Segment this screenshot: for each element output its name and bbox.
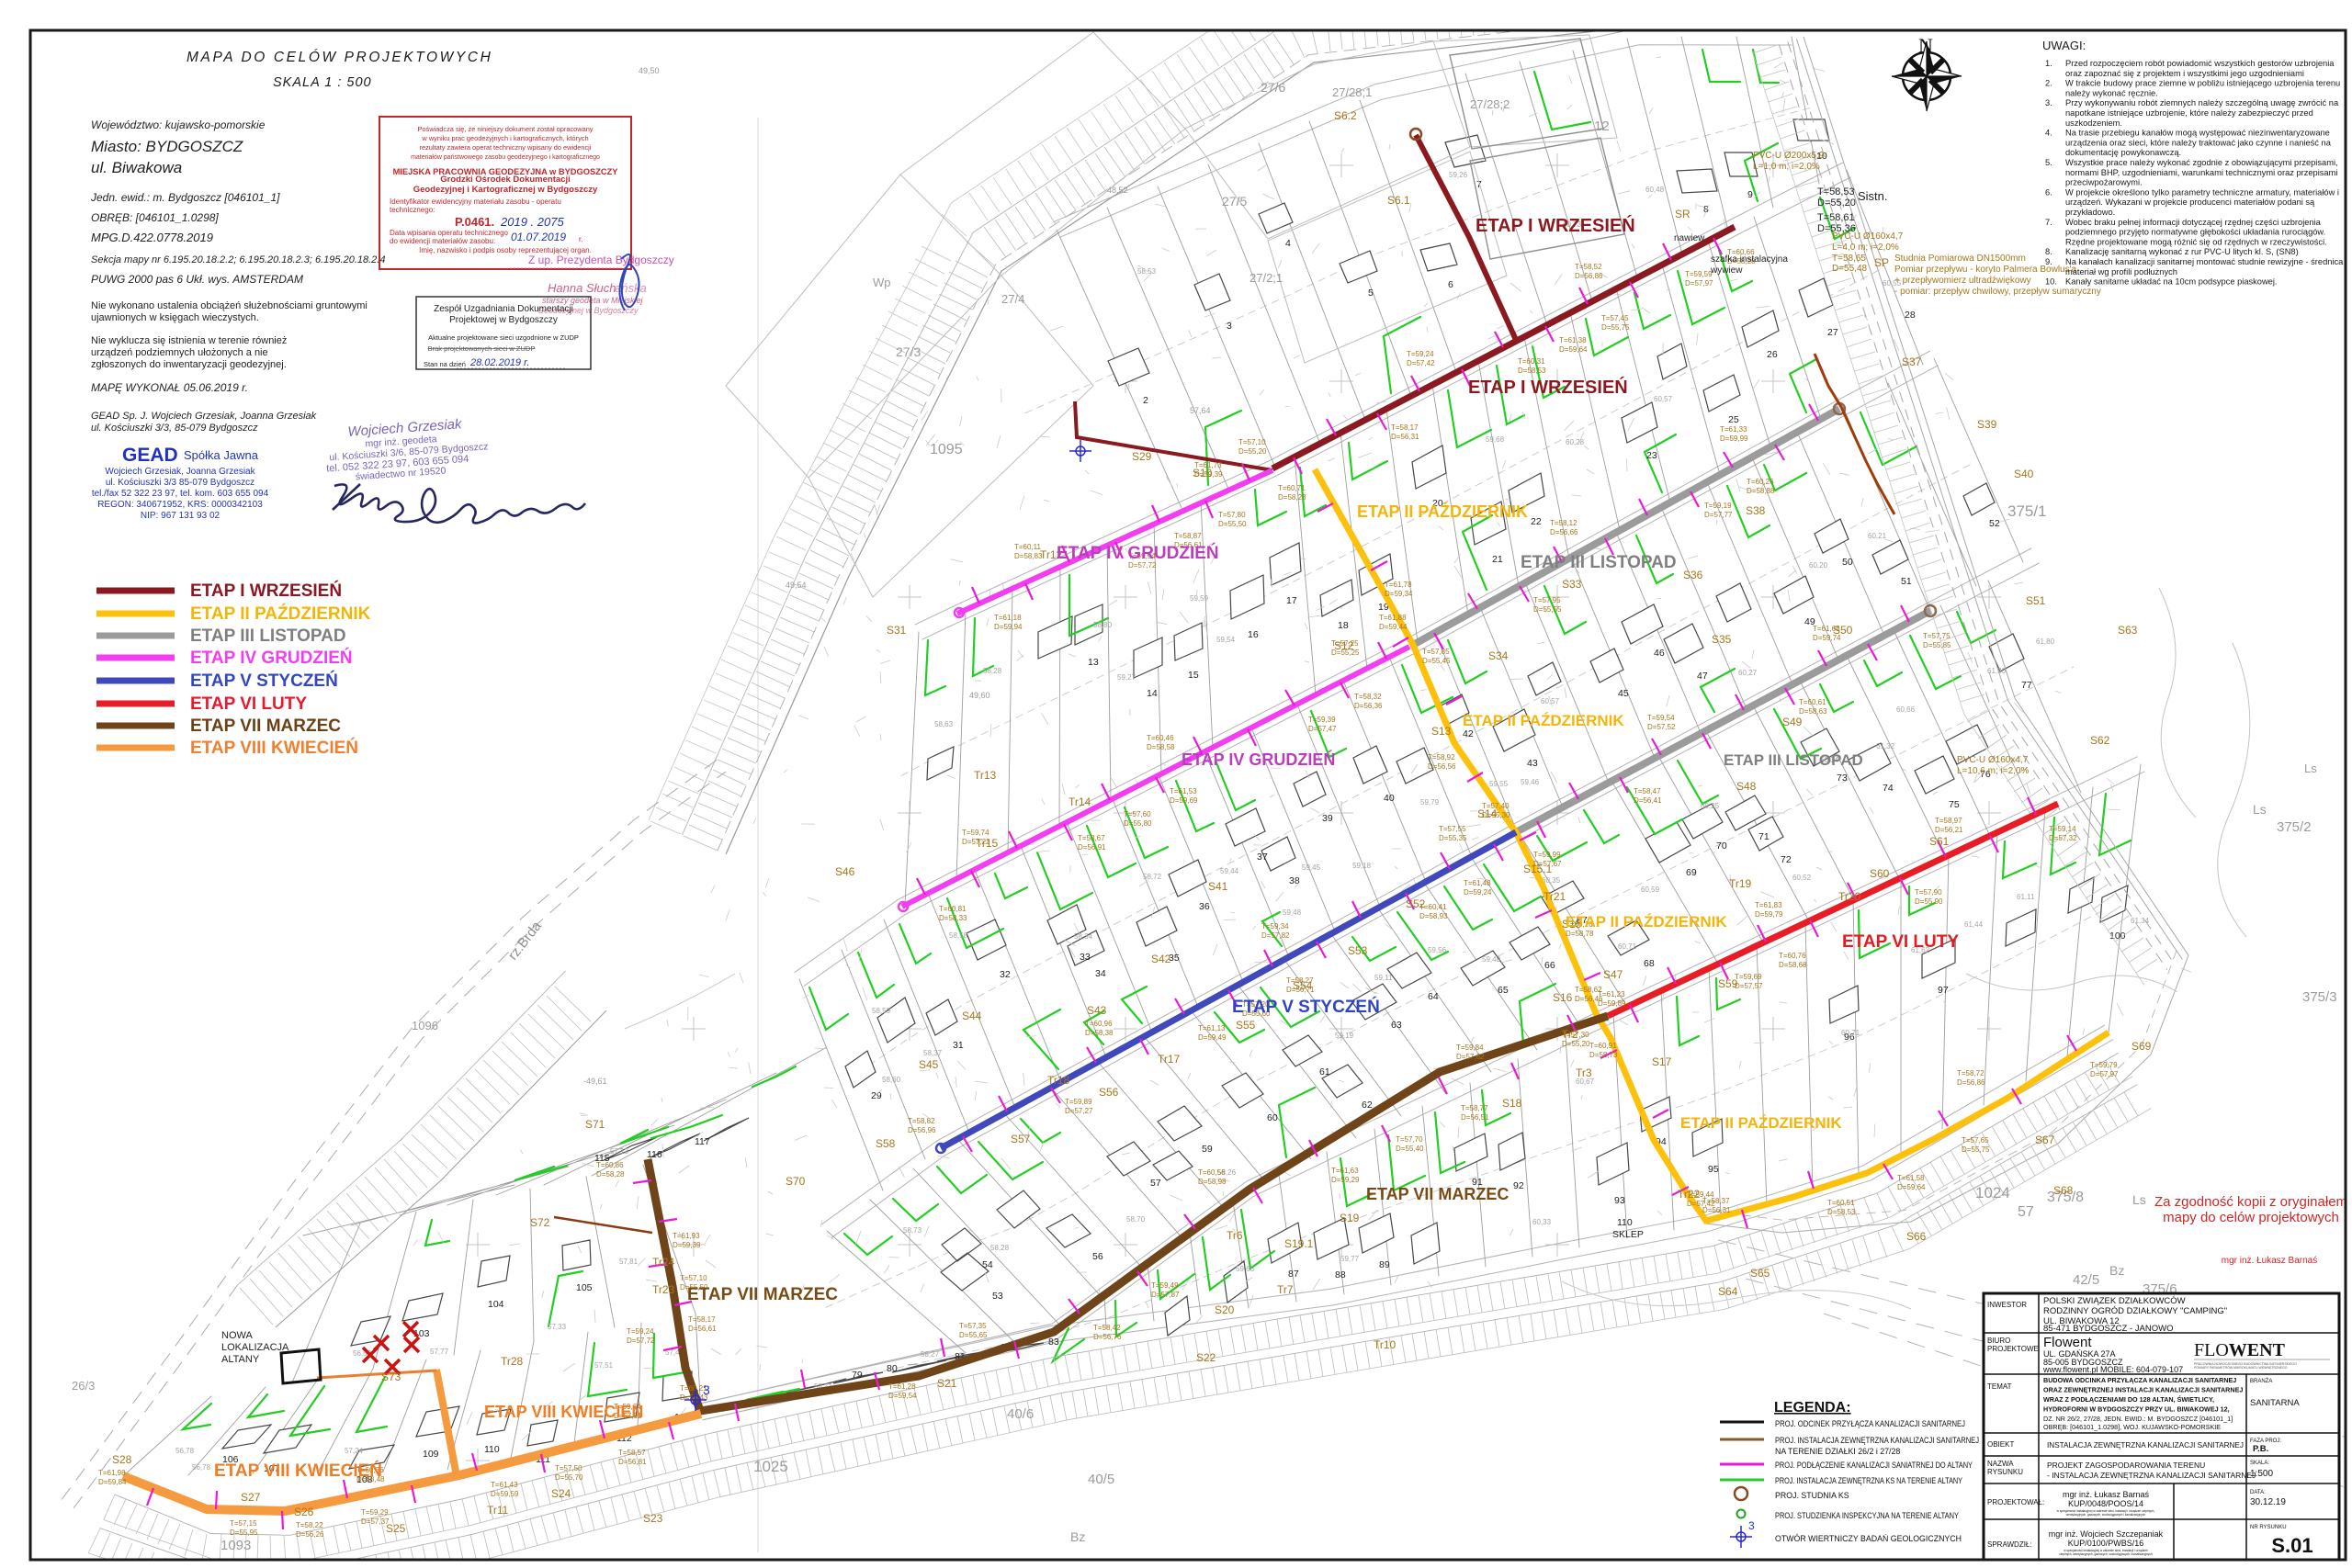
svg-text:materiał wg profili podłużnych: materiał wg profili podłużnych	[2065, 267, 2177, 276]
svg-text:D=57,52: D=57,52	[1647, 723, 1676, 731]
svg-text:S26: S26	[294, 1506, 314, 1518]
svg-text:ALTANY: ALTANY	[221, 1354, 260, 1365]
svg-text:ETAP III LISTOPAD: ETAP III LISTOPAD	[190, 626, 346, 646]
svg-text:93: 93	[1614, 1195, 1625, 1206]
svg-text:T=60,76: T=60,76	[1779, 952, 1806, 960]
svg-text:S34: S34	[1488, 649, 1509, 662]
svg-text:S56: S56	[1099, 1086, 1119, 1099]
svg-text:T=57,95: T=57,95	[1533, 596, 1561, 604]
svg-text:S6.2: S6.2	[1334, 109, 1357, 122]
svg-text:9: 9	[1747, 189, 1753, 200]
svg-text:Tr24: Tr24	[652, 1256, 675, 1269]
svg-text:PROJEKTOWE: PROJEKTOWE	[1987, 1345, 2039, 1353]
svg-text:DZ. NR 26/2, 27/28, JEDN. EWID: DZ. NR 26/2, 27/28, JEDN. EWID.: M. BYDG…	[2043, 1415, 2233, 1423]
svg-text:D=57,32: D=57,32	[2049, 834, 2077, 842]
svg-text:T=61,88: T=61,88	[1379, 614, 1407, 622]
svg-text:60,20: 60,20	[1809, 561, 1828, 570]
svg-text:technicznego:: technicznego:	[390, 206, 435, 214]
svg-text:43: 43	[1527, 758, 1538, 769]
svg-text:Za zgodność kopii z oryginałem: Za zgodność kopii z oryginałem	[2154, 1194, 2347, 1210]
svg-text:D=57,87: D=57,87	[1151, 1291, 1180, 1299]
svg-text:S46: S46	[835, 865, 855, 878]
svg-text:T=60,81: T=60,81	[939, 905, 967, 913]
svg-text:S63: S63	[2118, 624, 2138, 637]
svg-text:zgłoszonych do inwentaryzacji: zgłoszonych do inwentaryzacji geodezyjne…	[91, 359, 287, 370]
svg-text:68: 68	[1644, 958, 1655, 969]
svg-text:mapy do celów projektowych: mapy do celów projektowych	[2163, 1210, 2339, 1225]
svg-text:S48: S48	[1736, 780, 1757, 793]
svg-text:mgr inż. Łukasz Barnaś: mgr inż. Łukasz Barnaś	[2063, 1490, 2150, 1499]
svg-text:3: 3	[1227, 321, 1232, 332]
svg-text:T=57,15: T=57,15	[230, 1519, 257, 1528]
svg-text:ETAP VII MARZEC: ETAP VII MARZEC	[687, 1285, 838, 1304]
svg-text:59,77: 59,77	[1340, 1255, 1360, 1263]
svg-text:T=59,19: T=59,19	[1704, 502, 1732, 510]
svg-text:S15.1: S15.1	[1523, 863, 1553, 875]
svg-text:D=59,64: D=59,64	[1559, 345, 1588, 354]
svg-text:S19.1: S19.1	[1284, 1237, 1314, 1250]
svg-text:SANITARNA: SANITARNA	[2250, 1398, 2300, 1408]
svg-text:58,80: 58,80	[1093, 621, 1113, 629]
svg-text:Kanalizację sanitarną wykonać: Kanalizację sanitarną wykonać z rur PVC-…	[2065, 247, 2299, 256]
svg-text:T=57,90: T=57,90	[1915, 888, 1942, 897]
svg-text:Tr7: Tr7	[1277, 1283, 1294, 1296]
svg-text:S6.1: S6.1	[1387, 194, 1410, 207]
svg-text:D=59,39: D=59,39	[673, 1241, 701, 1249]
svg-text:ul. Kościuszki 3/3, 85-079 Byd: ul. Kościuszki 3/3, 85-079 Bydgoszcz	[91, 423, 258, 434]
svg-text:Wojciech Grzesiak, Joanna Grze: Wojciech Grzesiak, Joanna Grzesiak	[105, 467, 255, 477]
svg-text:T=58,87: T=58,87	[1174, 532, 1202, 540]
svg-text:D=55,85: D=55,85	[1923, 641, 1951, 649]
svg-text:27: 27	[1827, 327, 1838, 338]
svg-text:D=57,97: D=57,97	[2090, 1070, 2119, 1078]
svg-text:D=56,31: D=56,31	[1391, 433, 1419, 441]
svg-text:T=59,24: T=59,24	[1407, 350, 1434, 358]
svg-text:Wp: Wp	[873, 276, 891, 289]
svg-text:60: 60	[1267, 1112, 1278, 1123]
svg-text:40/5: 40/5	[1088, 1472, 1114, 1487]
svg-text:D=56,51: D=56,51	[1461, 1113, 1489, 1122]
svg-text:58,58: 58,58	[949, 931, 968, 940]
svg-text:Sistn.: Sistn.	[1858, 189, 1888, 203]
svg-text:nawiew: nawiew	[1674, 233, 1705, 243]
svg-text:D=57,72: D=57,72	[627, 1337, 655, 1345]
svg-text:S18: S18	[1502, 1097, 1522, 1110]
svg-text:T=57,60: T=57,60	[1124, 810, 1151, 818]
svg-text:LEGENDA:: LEGENDA:	[1774, 1400, 1851, 1416]
svg-text:D=55,48: D=55,48	[1832, 264, 1868, 274]
svg-text:Data wpisania operatu technicz: Data wpisania operatu technicznego	[390, 229, 509, 237]
svg-text:P.B.: P.B.	[2253, 1444, 2268, 1454]
svg-text:T=61,13: T=61,13	[1198, 1024, 1226, 1032]
svg-text:Jedn. ewid.: m. Bydgoszcz [046: Jedn. ewid.: m. Bydgoszcz [046101_1]	[90, 191, 280, 204]
svg-text:NA TERENIE DZIAŁKI 26/2 i 27/2: NA TERENIE DZIAŁKI 26/2 i 27/28	[1775, 1447, 1900, 1456]
svg-text:ETAP VIII KWIECIEŃ: ETAP VIII KWIECIEŃ	[190, 738, 358, 758]
svg-text:T=58,32: T=58,32	[1354, 693, 1382, 701]
svg-text:T=59,79: T=59,79	[2090, 1061, 2118, 1069]
svg-text:ORAZ ZEWNĘTRZNEJ INSTALACJI KA: ORAZ ZEWNĘTRZNEJ INSTALACJI KANALIZACJI …	[2043, 1386, 2243, 1394]
svg-text:ujawnionych w księgach wieczys: ujawnionych w księgach wieczystych.	[91, 312, 259, 323]
svg-text:OBIEKT: OBIEKT	[1987, 1440, 2014, 1449]
svg-text:PROJ. INSTALACJA ZEWNĘTRZNA KS: PROJ. INSTALACJA ZEWNĘTRZNA KS NA TERENI…	[1775, 1476, 1962, 1485]
svg-text:SKALA:: SKALA:	[2250, 1461, 2269, 1466]
svg-text:51: 51	[1901, 576, 1912, 587]
svg-text:S66: S66	[1906, 1230, 1927, 1243]
svg-text:D=56,86: D=56,86	[1575, 272, 1603, 280]
svg-text:1025: 1025	[753, 1458, 788, 1475]
svg-text:ETAP I WRZESIEŃ: ETAP I WRZESIEŃ	[1476, 215, 1635, 236]
svg-text:T=61,28: T=61,28	[888, 1382, 916, 1391]
svg-text:116: 116	[647, 1149, 662, 1160]
svg-text:Ls: Ls	[2132, 1192, 2146, 1207]
svg-text:D=58,98: D=58,98	[1198, 1178, 1227, 1186]
svg-text:S65: S65	[1750, 1267, 1770, 1280]
svg-text:T=61,98: T=61,98	[98, 1469, 126, 1477]
svg-text:urządzenia oraz sieci, które n: urządzenia oraz sieci, które należy trak…	[2065, 138, 2332, 147]
svg-text:49,60: 49,60	[969, 691, 990, 700]
svg-text:59,46: 59,46	[1521, 778, 1540, 786]
svg-text:ETAP VIII KWIECIEŃ: ETAP VIII KWIECIEŃ	[484, 1402, 643, 1421]
svg-text:T=61,53: T=61,53	[1170, 787, 1197, 795]
svg-text:S25: S25	[386, 1522, 406, 1535]
svg-text:60,28: 60,28	[1566, 438, 1585, 446]
svg-text:S39: S39	[1977, 418, 1997, 431]
svg-text:FLOWENT: FLOWENT	[2194, 1340, 2286, 1360]
svg-text:T=57,10: T=57,10	[680, 1274, 707, 1282]
svg-text:D=55,75: D=55,75	[1601, 323, 1630, 332]
svg-text:D=58,33: D=58,33	[939, 914, 967, 922]
svg-text:D=57,57: D=57,57	[1735, 982, 1763, 990]
svg-text:25: 25	[1728, 414, 1739, 425]
svg-text:PVC-U Ø200x5,9: PVC-U Ø200x5,9	[1753, 151, 1825, 161]
svg-text:S61: S61	[1929, 835, 1950, 848]
svg-text:SPRAWDZIŁ:: SPRAWDZIŁ:	[1987, 1540, 2032, 1549]
svg-text:r.: r.	[579, 235, 582, 243]
svg-text:57,77: 57,77	[430, 1348, 449, 1356]
svg-text:10.: 10.	[2045, 277, 2057, 287]
svg-text:61,44: 61,44	[1964, 920, 1984, 929]
svg-text:60,57: 60,57	[1541, 697, 1560, 705]
svg-text:71: 71	[1758, 831, 1770, 842]
svg-text:58,34: 58,34	[1074, 932, 1093, 941]
svg-text:D=59,49: D=59,49	[1198, 1033, 1227, 1042]
svg-text:D=57,47: D=57,47	[1308, 725, 1337, 733]
svg-text:ETAP II PAŹDZIERNIK: ETAP II PAŹDZIERNIK	[190, 604, 371, 624]
svg-text:59,44: 59,44	[1220, 867, 1239, 875]
svg-text:S45: S45	[919, 1058, 939, 1071]
svg-text:50: 50	[1842, 557, 1853, 568]
svg-text:57,33: 57,33	[548, 1323, 567, 1331]
svg-text:T=59,74: T=59,74	[962, 829, 989, 837]
svg-text:T=59,49: T=59,49	[1151, 1281, 1179, 1290]
svg-text:T=57,85: T=57,85	[1422, 648, 1450, 656]
svg-text:79: 79	[852, 1370, 863, 1381]
svg-text:T=61,38: T=61,38	[1559, 336, 1587, 344]
svg-text:S49: S49	[1782, 716, 1803, 728]
svg-text:T=57,10: T=57,10	[1238, 438, 1266, 446]
svg-text:375/2: 375/2	[2277, 819, 2312, 835]
svg-text:Bz: Bz	[2109, 1263, 2124, 1278]
svg-text:60,27: 60,27	[1738, 669, 1758, 677]
svg-text:T=58,72: T=58,72	[1957, 1069, 1984, 1077]
svg-text:WRAZ Z PODŁĄCZENIAMI DO 128 AL: WRAZ Z PODŁĄCZENIAMI DO 128 ALTAN, ŚWIET…	[2043, 1395, 2214, 1404]
svg-text:52: 52	[1989, 518, 2000, 529]
svg-text:Tr11: Tr11	[487, 1504, 509, 1517]
svg-text:105: 105	[576, 1282, 593, 1293]
svg-text:normami BHP, uzgodnieniami, wa: normami BHP, uzgodnieniami, warunkami te…	[2065, 168, 2337, 177]
svg-text:32: 32	[1000, 969, 1011, 980]
svg-text:PROJEKT ZAGOSPODAROWANIA TEREN: PROJEKT ZAGOSPODAROWANIA TERENU	[2047, 1461, 2205, 1470]
svg-text:Rzędne projektowane mogą różni: Rzędne projektowane mogą różnić się od r…	[2065, 237, 2327, 246]
svg-text:Tr10: Tr10	[1374, 1338, 1396, 1351]
svg-text:88: 88	[1335, 1269, 1346, 1280]
svg-text:D=59,54: D=59,54	[888, 1392, 917, 1400]
svg-text:S33: S33	[1562, 578, 1582, 591]
svg-text:69: 69	[1686, 867, 1697, 878]
svg-text:- INSTALACJA ZEWNĘTRZNA KANALI: - INSTALACJA ZEWNĘTRZNA KANALIZACJI SANI…	[2047, 1471, 2256, 1480]
svg-text:ETAP VI LUTY: ETAP VI LUTY	[1842, 932, 1959, 952]
svg-text:34: 34	[1095, 968, 1106, 979]
svg-text:INSTALACJA ZEWNĘTRZNA KANALIZA: INSTALACJA ZEWNĘTRZNA KANALIZACJI SANITA…	[2047, 1441, 2244, 1450]
svg-text:73: 73	[1837, 773, 1848, 784]
svg-text:dokumentację powykonawczą.: dokumentację powykonawczą.	[2065, 148, 2181, 157]
svg-text:7.: 7.	[2045, 218, 2052, 227]
svg-text:szafka instalacyjna: szafka instalacyjna	[1711, 254, 1788, 265]
svg-text:59,27: 59,27	[1117, 673, 1136, 682]
svg-text:39: 39	[1322, 813, 1333, 824]
svg-text:Tr20: Tr20	[1838, 890, 1861, 903]
svg-text:T=57,55: T=57,55	[1439, 825, 1466, 833]
svg-text:D=55,65: D=55,65	[959, 1331, 988, 1339]
svg-text:Tr15: Tr15	[976, 837, 999, 850]
svg-text:w wyniku prac geodezyjnych i k: w wyniku prac geodezyjnych i kartografic…	[421, 134, 588, 142]
svg-text:Tr13: Tr13	[974, 769, 997, 782]
svg-text:61,32: 61,32	[1876, 742, 1895, 750]
svg-text:D=57,27: D=57,27	[1065, 1107, 1093, 1115]
svg-text:T=57,70: T=57,70	[1396, 1135, 1423, 1144]
svg-text:Geodezyjnej i Kartograficznej: Geodezyjnej i Kartograficznej w Bydgoszc…	[413, 185, 598, 195]
svg-text:Zespół Uzgadniania Dokumentacj: Zespół Uzgadniania Dokumentacji	[434, 304, 573, 314]
svg-text:T=58,77: T=58,77	[1461, 1104, 1488, 1112]
svg-text:42: 42	[1463, 728, 1474, 739]
svg-text:27/28;1: 27/28;1	[1332, 85, 1372, 99]
svg-text:BUDOWA ODCINKA PRZYŁĄCZA KANAL: BUDOWA ODCINKA PRZYŁĄCZA KANALIZACJI SAN…	[2043, 1376, 2236, 1384]
svg-text:30.12.19: 30.12.19	[2250, 1497, 2286, 1507]
svg-text:1093: 1093	[220, 1538, 251, 1553]
svg-text:S52: S52	[1406, 897, 1426, 910]
svg-text:58,27: 58,27	[921, 1350, 940, 1359]
svg-text:D=55,70: D=55,70	[555, 1473, 583, 1482]
svg-text:T=60,31: T=60,31	[1518, 357, 1545, 366]
svg-text:-49,61: -49,61	[583, 1077, 607, 1086]
svg-text:T=60,11: T=60,11	[1014, 543, 1042, 551]
svg-text:8: 8	[1703, 204, 1709, 215]
svg-text:1095: 1095	[930, 442, 963, 457]
svg-text:4.: 4.	[2045, 129, 2052, 138]
svg-text:22: 22	[1531, 516, 1542, 527]
svg-text:27/28;2: 27/28;2	[1470, 97, 1510, 111]
svg-text:D=58,83: D=58,83	[1014, 552, 1043, 560]
svg-text:1024: 1024	[1975, 1184, 2010, 1201]
svg-text:Grodzki Ośrodek Dokumentacji: Grodzki Ośrodek Dokumentacji	[440, 175, 570, 185]
svg-text:Ls: Ls	[2304, 761, 2317, 775]
svg-text:58,73: 58,73	[903, 1226, 922, 1235]
svg-text:57,81: 57,81	[619, 1258, 639, 1266]
svg-text:T=58,47: T=58,47	[1634, 787, 1661, 795]
svg-text:D=55,55: D=55,55	[1533, 605, 1562, 614]
svg-text:D=57,97: D=57,97	[1685, 279, 1713, 288]
svg-text:Stan na dzień: Stan na dzień	[424, 360, 466, 368]
svg-text:58,59: 58,59	[872, 1007, 891, 1015]
svg-text:www.flowent.pl MOBILE: 604: www.flowent.pl MOBILE: 604-079-107	[2042, 1365, 2183, 1374]
svg-text:87: 87	[1288, 1269, 1299, 1280]
svg-text:T=59,99: T=59,99	[1533, 851, 1561, 859]
svg-text:OBRĘB: [046101_1.0298], WOJ. K: OBRĘB: [046101_1.0298], WOJ. KUJAWSKO-PO…	[2043, 1423, 2221, 1431]
svg-text:36: 36	[1199, 901, 1210, 912]
svg-text:+ przepływomierz ultradźwiękow: + przepływomierz ultradźwiękowy	[1894, 276, 2031, 286]
svg-text:2019 . 2075: 2019 . 2075	[500, 215, 564, 229]
svg-text:47: 47	[1697, 671, 1708, 682]
svg-text:S55: S55	[1236, 1019, 1256, 1032]
svg-text:D=55,75: D=55,75	[1962, 1145, 1990, 1154]
svg-text:83: 83	[1048, 1337, 1059, 1348]
svg-text:56,78: 56,78	[175, 1447, 195, 1455]
svg-text:46: 46	[1654, 648, 1665, 659]
svg-text:T=58,17: T=58,17	[688, 1315, 716, 1324]
svg-text:D=58,93: D=58,93	[1419, 912, 1448, 920]
svg-text:UWAGI:: UWAGI:	[2042, 39, 2086, 52]
svg-text:L=10,6 m; i=2,0%: L=10,6 m; i=2,0%	[1957, 766, 2029, 776]
svg-text:S60: S60	[1870, 867, 1890, 880]
svg-text:D=58,38: D=58,38	[1085, 1029, 1114, 1037]
svg-text:S23: S23	[643, 1512, 663, 1525]
svg-text:59,66: 59,66	[1236, 1265, 1255, 1273]
svg-text:75: 75	[1949, 799, 1960, 810]
svg-text:42/5: 42/5	[2073, 1272, 2099, 1288]
svg-text:S27: S27	[241, 1491, 261, 1504]
svg-text:S22: S22	[1196, 1351, 1216, 1364]
svg-text:1:500: 1:500	[2250, 1469, 2273, 1479]
svg-text:D=57,42: D=57,42	[1687, 1200, 1715, 1208]
svg-text:ETAP IV GRUDZIEŃ: ETAP IV GRUDZIEŃ	[1182, 750, 1335, 769]
svg-text:T=59,54: T=59,54	[1647, 714, 1675, 722]
svg-text:49,50: 49,50	[639, 66, 660, 75]
svg-text:Miasto: BYDGOSZCZ: Miasto: BYDGOSZCZ	[91, 138, 243, 155]
svg-text:ETAP III LISTOPAD: ETAP III LISTOPAD	[1724, 751, 1863, 769]
svg-text:GEAD Sp. J. Wojciech Grzesiak,: GEAD Sp. J. Wojciech Grzesiak, Joanna Gr…	[91, 411, 317, 422]
svg-text:23: 23	[1646, 450, 1657, 461]
svg-text:S.01: S.01	[2271, 1534, 2312, 1557]
svg-text:5.: 5.	[2045, 158, 2052, 167]
svg-text:S44: S44	[962, 1010, 982, 1022]
svg-text:T=60,71: T=60,71	[1278, 484, 1306, 492]
svg-text:54: 54	[982, 1259, 993, 1270]
svg-text:T=58,65: T=58,65	[1832, 254, 1866, 264]
svg-text:S62: S62	[2090, 734, 2110, 747]
svg-text:Brak projektowanych sieci w ZU: Brak projektowanych sieci w ZUDP	[428, 344, 536, 353]
svg-text:6: 6	[1448, 279, 1453, 290]
svg-text:T=61,43: T=61,43	[491, 1481, 518, 1489]
svg-text:T=59,39: T=59,39	[1308, 716, 1336, 724]
svg-text:58,63: 58,63	[934, 720, 954, 728]
svg-text:PROJ. STUDNIA KS: PROJ. STUDNIA KS	[1775, 1491, 1849, 1500]
svg-text:2: 2	[1143, 395, 1148, 406]
svg-text:T=57,50: T=57,50	[555, 1464, 582, 1472]
svg-text:S29: S29	[1132, 450, 1152, 463]
svg-text:D=58,53: D=58,53	[1827, 1208, 1856, 1216]
svg-text:58,28: 58,28	[983, 667, 1002, 675]
svg-text:95: 95	[1708, 1164, 1719, 1175]
svg-text:podziemnego przyjęto normatywn: podziemnego przyjęto normatywne głębokoś…	[2065, 228, 2325, 237]
svg-text:57: 57	[2018, 1204, 2034, 1220]
svg-text:64: 64	[1428, 991, 1439, 1002]
svg-text:PROJ. ODCINEK PRZYŁĄCZA KANALI: PROJ. ODCINEK PRZYŁĄCZA KANALIZACJI SANI…	[1775, 1419, 1965, 1428]
svg-text:40: 40	[1384, 793, 1395, 804]
svg-text:ETAP II PAŹDZIERNIK: ETAP II PAŹDZIERNIK	[1357, 502, 1528, 521]
svg-text:D=58,58: D=58,58	[1147, 743, 1175, 751]
svg-text:OBRĘB: [046101_1.0298]: OBRĘB: [046101_1.0298]	[91, 211, 219, 224]
svg-text:65: 65	[1498, 985, 1509, 996]
svg-text:T=59,24: T=59,24	[627, 1327, 654, 1336]
svg-text:59,56: 59,56	[1428, 946, 1447, 954]
svg-text:T=58,92: T=58,92	[1428, 753, 1455, 761]
svg-text:TEMAT: TEMAT	[1987, 1382, 2012, 1391]
svg-text:59,55: 59,55	[1489, 780, 1509, 788]
svg-text:70: 70	[1716, 840, 1727, 852]
svg-text:Województwo: kujawsko-pomorski: Województwo: kujawsko-pomorskie	[91, 118, 266, 131]
svg-text:MAPA DO CELÓW PROJEKTOWYCH: MAPA DO CELÓW PROJEKTOWYCH	[187, 50, 492, 65]
svg-text:SR: SR	[1675, 208, 1690, 220]
svg-text:D=55,45: D=55,45	[1422, 657, 1451, 665]
svg-text:D=55,20: D=55,20	[1817, 197, 1856, 209]
svg-text:59,18: 59,18	[1352, 862, 1372, 870]
svg-text:26/3: 26/3	[72, 1379, 95, 1393]
svg-text:D=56,26: D=56,26	[296, 1530, 324, 1539]
svg-text:Tr18: Tr18	[1047, 1074, 1070, 1087]
svg-text:S53: S53	[1348, 944, 1368, 957]
svg-text:Przy wykonywaniu robót ziemnyc: Przy wykonywaniu robót ziemnych należy s…	[2065, 98, 2339, 107]
svg-text:62: 62	[1362, 1100, 1373, 1111]
svg-text:T=59,29: T=59,29	[361, 1508, 389, 1517]
svg-text:T=58,67: T=58,67	[1078, 834, 1105, 842]
svg-text:L=1,0 m; i=2,0%: L=1,0 m; i=2,0%	[1753, 162, 1820, 172]
svg-text:D=56,91: D=56,91	[1078, 843, 1106, 852]
svg-text:OTWÓR WIERTNICZY BADAŃ GEOLOGI: OTWÓR WIERTNICZY BADAŃ GEOLOGICZNYCH	[1775, 1534, 1962, 1543]
svg-text:ETAP II PAŹDZIERNIK: ETAP II PAŹDZIERNIK	[1680, 1114, 1842, 1132]
svg-text:3: 3	[703, 1382, 710, 1397]
svg-text:77: 77	[2021, 680, 2032, 691]
svg-text:BIURO: BIURO	[1987, 1337, 2010, 1345]
svg-text:P.0461.: P.0461.	[455, 215, 494, 229]
svg-text:Projektowej w Bydgoszczy: Projektowej w Bydgoszczy	[449, 315, 558, 325]
svg-text:Tr23: Tr23	[652, 1283, 675, 1296]
svg-text:rezultaty zawiera operat techn: rezultaty zawiera operat techniczny wpis…	[420, 143, 592, 152]
svg-text:ETAP VII MARZEC: ETAP VII MARZEC	[190, 716, 341, 736]
svg-text:S50: S50	[1833, 624, 1853, 637]
svg-text:45: 45	[1618, 688, 1629, 699]
svg-text:ETAP VII MARZEC: ETAP VII MARZEC	[1366, 1185, 1509, 1203]
svg-text:wywiew: wywiew	[1710, 265, 1743, 276]
svg-text:S40: S40	[2014, 468, 2034, 480]
svg-text:RYSUNKU: RYSUNKU	[1987, 1468, 2023, 1476]
svg-text:14: 14	[1147, 688, 1158, 699]
svg-text:PROJ. PODŁĄCZENIE KANALIZACJI: PROJ. PODŁĄCZENIE KANALIZACJI SANIATRNEJ…	[1775, 1461, 1973, 1470]
svg-text:57,13: 57,13	[610, 1147, 629, 1156]
svg-text:SP: SP	[1874, 256, 1889, 269]
svg-text:D=58,28: D=58,28	[596, 1170, 625, 1179]
svg-text:57,51: 57,51	[594, 1361, 614, 1370]
svg-text:T=57,35: T=57,35	[959, 1322, 987, 1330]
